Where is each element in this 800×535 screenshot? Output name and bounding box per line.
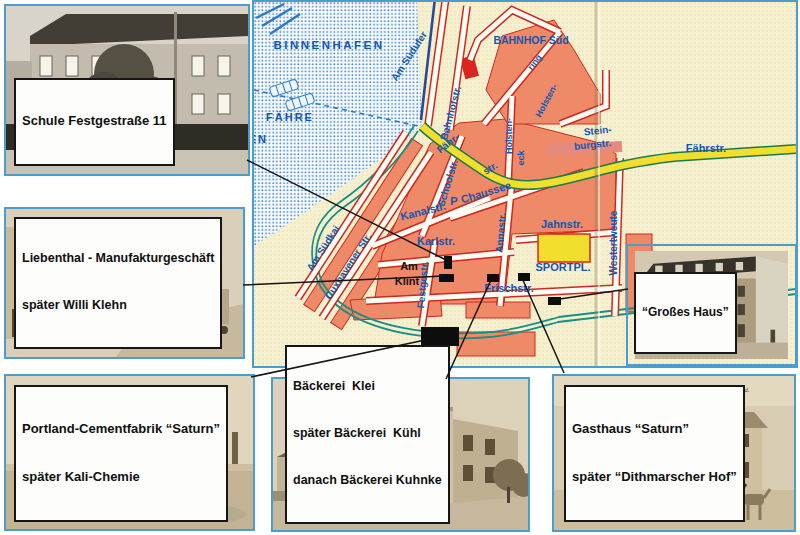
label-binnenhafen: BINNENHAFEN	[273, 39, 384, 51]
map-marker-cementfabrik	[421, 327, 459, 346]
label-faehre: FÄHRE	[266, 111, 314, 123]
label-faehrstr: Fährstr.	[686, 142, 726, 154]
collage-canvas: BINNENHAFEN FÄHRE HAFEN BAHNHOF Süd Am S…	[0, 0, 800, 535]
photo-liebenthal-label: Liebenthal - Manufakturgeschäft später W…	[14, 217, 222, 349]
photo-baeckerei-label-line3: danach Bäckerei Kuhnke	[293, 473, 442, 489]
photo-grosses-haus: “Großes Haus”	[626, 244, 797, 366]
map-marker-baeckerei	[487, 274, 499, 282]
map-marker-grosses-haus	[548, 297, 561, 305]
label-holsteneck-a: Holsten-	[504, 118, 514, 154]
label-sportpl: SPORTPL.	[535, 261, 590, 273]
photo-baeckerei: Bäckerei Klei später Bäckerei Kühl danac…	[271, 377, 530, 532]
photo-liebenthal-label-line1: Liebenthal - Manufakturgeschäft	[22, 251, 214, 267]
label-karlstr: Karlstr.	[417, 235, 455, 247]
photo-liebenthal: Brunsbüttelkoog Feststr. Liebenthal - Ma…	[4, 207, 245, 359]
photo-gasthaus: Brunsbüttelkoog. Gruß vom Gasthaus „Satu…	[552, 374, 796, 532]
label-bahnhof-sued: BAHNHOF Süd	[493, 34, 568, 46]
photo-baeckerei-label: Bäckerei Klei später Bäckerei Kühl danac…	[285, 345, 450, 524]
photo-cementfabrik: Brunsbüttelkoog Cementfabrik Saturn Port…	[4, 374, 255, 531]
label-am-klint-a: Am	[400, 260, 418, 272]
photo-gasthaus-label-line1: Gasthaus “Saturn”	[572, 421, 737, 437]
photo-gasthaus-label-line2: später “Dithmarscher Hof”	[572, 469, 737, 485]
photo-baeckerei-label-line1: Bäckerei Klei	[293, 379, 442, 395]
label-parking: P	[450, 195, 457, 207]
label-jahnstr: Jahnstr.	[541, 218, 583, 230]
map-marker-gasthaus	[518, 273, 530, 281]
photo-cementfabrik-label-line1: Portland-Cementfabrik “Saturn”	[22, 421, 220, 437]
photo-gasthaus-label: Gasthaus “Saturn” später “Dithmarscher H…	[564, 385, 745, 522]
photo-cementfabrik-label-line2: später Kali-Chemie	[22, 469, 220, 485]
photo-baeckerei-label-line2: später Bäckerei Kühl	[293, 426, 442, 442]
photo-liebenthal-label-line2: später Willi Klehn	[22, 298, 214, 314]
label-holsteneck-b: eck	[516, 150, 526, 166]
map-marker-schule	[444, 256, 452, 269]
map-marker-liebenthal	[439, 274, 454, 282]
photo-schule: Schule Festgestraße 11	[4, 4, 250, 176]
map-fold-crease	[596, 2, 599, 366]
label-am-klint-b: Klint	[395, 275, 420, 287]
photo-cementfabrik-label: Portland-Cementfabrik “Saturn” später Ka…	[14, 385, 228, 522]
photo-grosses-haus-label: “Großes Haus”	[634, 272, 737, 354]
label-frischstr: Frischstr.	[484, 282, 534, 294]
label-westertweute: Westertweute	[608, 210, 619, 275]
photo-schule-label: Schule Festgestraße 11	[14, 78, 175, 166]
photo-grosses-haus-label-text: “Großes Haus”	[642, 305, 729, 320]
photo-schule-label-text: Schule Festgestraße 11	[22, 113, 167, 129]
label-hafen: HAFEN	[254, 133, 268, 145]
sports-field	[538, 234, 590, 262]
